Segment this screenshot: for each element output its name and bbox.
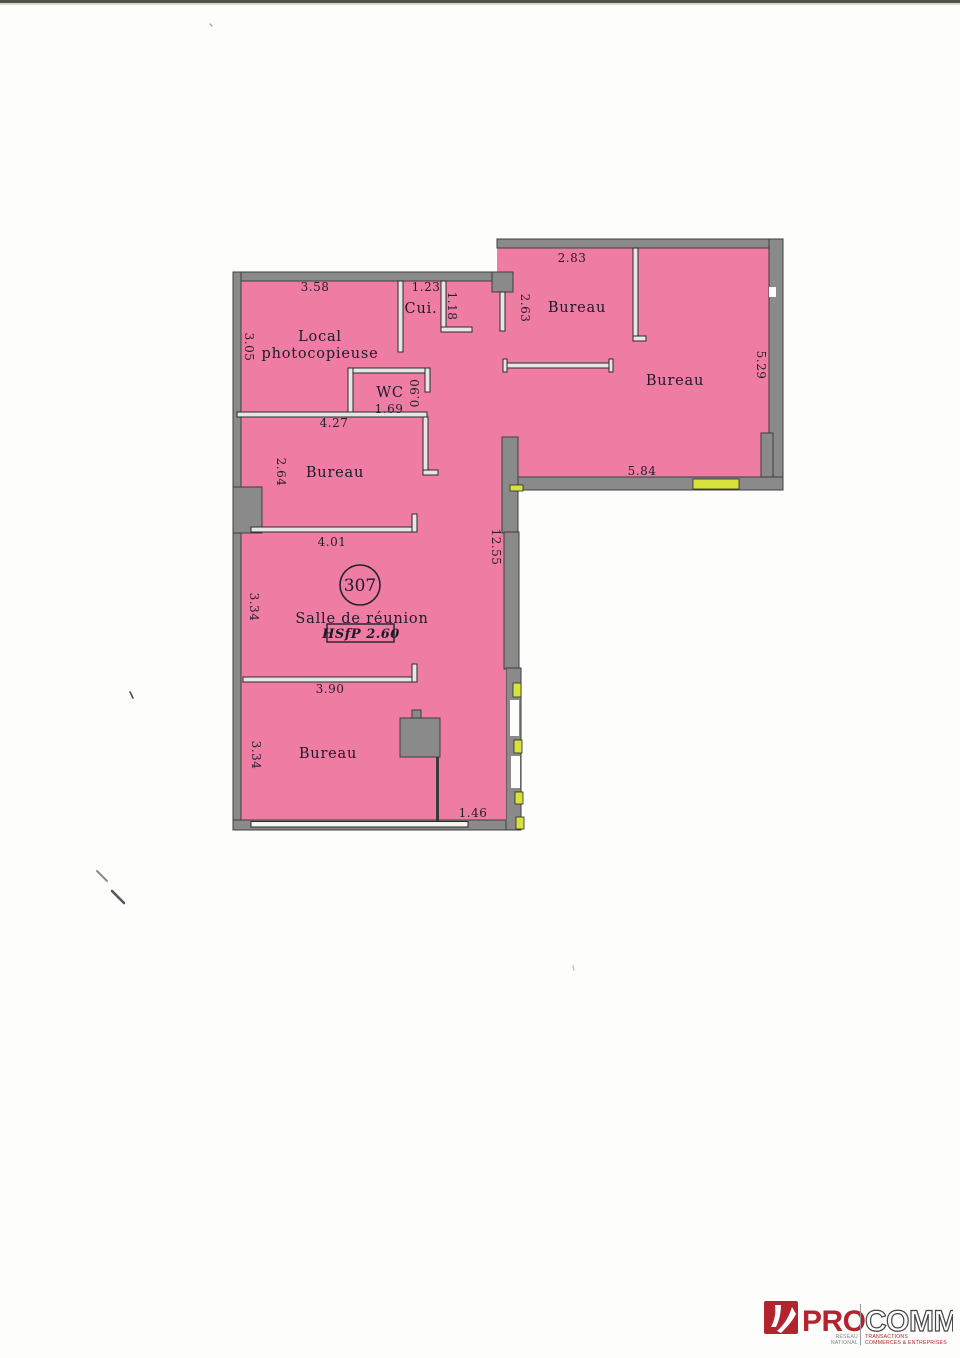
dim-salle-depth: 3.34 [247,593,261,622]
room-label-bureau-left: Bureau [306,465,364,481]
logo-network-line1: RÉSEAU [835,1333,858,1340]
floor-plan: 3.58 1.23 3.05 1.18 2.63 1.69 0.90 4.27 … [0,0,960,1358]
bottom-window-band [251,822,468,828]
dim-wc-door: 0.90 [408,379,422,408]
dim-local-depth: 3.05 [242,333,256,362]
dim-salle-bottom-width: 3.90 [316,682,345,696]
dim-salle-top-width: 4.01 [318,535,347,549]
dim-hall-depth: 2.63 [518,294,532,323]
logo-network-line2: NATIONAL [831,1340,858,1346]
dim-wc-width: 1.69 [375,402,404,416]
procomm-logo-icon [764,1301,798,1334]
room-label-cuisine: Cui. [405,301,438,317]
right-wall-notch [769,287,776,297]
dim-cui-depth: 1.18 [445,292,459,321]
dim-bureau-top-width: 2.83 [558,251,587,265]
unit-number: 307 [344,576,376,596]
room-label-bureau-top: Bureau [548,300,606,316]
room-label-bureau-right: Bureau [646,373,704,389]
ceiling-height-label: HSfP 2.60 [321,627,400,642]
dim-cui-width: 1.23 [412,280,441,294]
scanned-page: 3.58 1.23 3.05 1.18 2.63 1.69 0.90 4.27 … [0,0,960,1358]
dim-bureau-left-width: 4.27 [320,416,349,430]
dim-bureau-bottom-depth: 3.34 [249,741,263,770]
dim-corridor-length: 12.55 [489,529,503,566]
procomm-logo: PRO COMM RÉSEAU NATIONAL TRANSACTIONS CO… [748,1294,953,1354]
room-label-local-line1: Local [298,329,342,345]
dim-local-width: 3.58 [301,280,330,294]
dim-recess-width: 1.46 [459,806,488,820]
dim-bureau-right-depth: 5.29 [754,351,768,380]
room-label-wc: WC [376,385,404,401]
duct-partition-line [436,757,439,822]
window-markers [510,479,739,829]
logo-tagline-line2: COMMERCES & ENTREPRISES [865,1340,947,1346]
room-label-local-line2: photocopieuse [261,346,378,362]
dim-bureau-right-width: 5.84 [628,464,657,478]
room-label-bureau-bottom: Bureau [299,746,357,762]
dim-bureau-left-depth: 2.64 [274,458,288,487]
